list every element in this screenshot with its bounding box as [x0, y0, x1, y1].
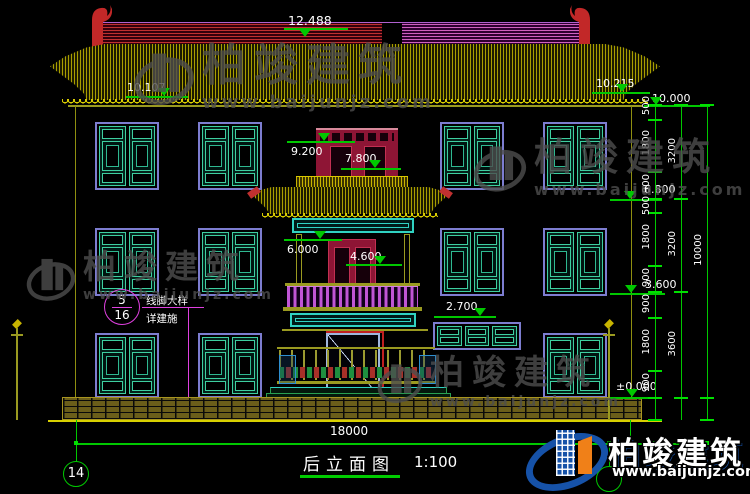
window-pane [437, 326, 462, 346]
window [198, 122, 262, 190]
watermark: 柏竣建筑 www.baijunjz.com [376, 356, 621, 410]
dim-label: 1800 [641, 224, 652, 249]
dim-label: 900 [641, 373, 652, 392]
watermark-logo-icon [472, 138, 528, 196]
window-pane [129, 337, 156, 394]
elevation-triangle-icon [616, 84, 628, 92]
watermark: 柏竣建筑 www.baijunjz.com [132, 44, 434, 113]
window-pane [202, 126, 229, 186]
total-width-label: 18000 [330, 424, 368, 438]
logo-building-blue-icon [556, 430, 575, 476]
elevation-triangle-icon [374, 256, 386, 264]
window-pane [465, 326, 490, 346]
window [95, 122, 159, 190]
window-pane [129, 126, 156, 186]
balcony-balusters [287, 286, 418, 307]
porch-chair-left [279, 355, 296, 384]
middle-roof [252, 187, 448, 214]
window-pane [492, 326, 517, 346]
watermark-logo-icon [376, 356, 424, 408]
elevation-value: 6.000 [287, 243, 319, 256]
ground-line [48, 420, 662, 422]
lamp-post-left [16, 328, 18, 420]
balcony-door-panel [334, 247, 350, 287]
drawing-scale: 1:100 [414, 453, 457, 471]
pavilion-lattice [320, 133, 394, 141]
title-underline [300, 475, 400, 478]
elevation-triangle-icon [318, 133, 330, 141]
elevation-triangle-icon [474, 308, 486, 316]
elevation-triangle-icon [626, 389, 638, 397]
elevation-triangle-icon [625, 285, 637, 293]
elevation-value: 12.488 [288, 13, 332, 28]
elevation-value: 9.200 [291, 145, 323, 158]
watermark-url: www.baijunjz.com [534, 180, 745, 199]
dim-label: 1800 [641, 329, 652, 354]
dim-label: 900 [641, 294, 652, 313]
window [543, 228, 607, 296]
window [440, 228, 504, 296]
elevation-value: 2.700 [446, 300, 478, 313]
window-pane [444, 232, 471, 292]
grid-bubble-14: 14 [63, 461, 89, 487]
window-pane [577, 232, 604, 292]
dim-label: 10000 [693, 234, 704, 266]
watermark-name: 柏竣建筑 [534, 138, 745, 176]
elevation-triangle-icon [299, 29, 311, 37]
cad-elevation-drawing: 12.488 10.107 10.215 10.000 9.200 7.800 … [0, 0, 750, 494]
window-pane [99, 126, 126, 186]
porch-rail-top [277, 347, 435, 349]
door-red-line-h [326, 331, 384, 333]
dim-label: 3600 [667, 331, 678, 356]
watermark-url: www.baijunjz.com [202, 92, 434, 113]
ridge-ornament-left [84, 4, 112, 48]
elevation-triangle-icon [314, 231, 326, 239]
callout-text-line2: 详建施 [146, 311, 178, 326]
dim-label: 500 [641, 96, 652, 115]
watermark-name: 柏竣建筑 [83, 250, 274, 283]
dim-label: 900 [641, 268, 652, 287]
lamp-post-arm-right [603, 334, 615, 336]
watermark-name: 柏竣建筑 [430, 356, 621, 390]
ridge-ornament-right [570, 4, 598, 48]
window-pane [99, 337, 126, 394]
window [198, 333, 262, 398]
logo-url: www.baijunjz.com [612, 464, 750, 480]
callout-denominator: 16 [114, 309, 129, 321]
drawing-title: 后立面图 [303, 450, 395, 475]
balcony-base-rail [283, 307, 422, 311]
callout-leader-line [188, 307, 189, 397]
window-pane [547, 232, 574, 292]
window-pane [474, 232, 501, 292]
watermark: 柏竣建筑 www.baijunjz.com [472, 138, 745, 199]
lamp-post-arm-left [11, 334, 23, 336]
dim-label: 3200 [667, 231, 678, 256]
cyan-beam-upper [292, 218, 414, 233]
watermark-url: www.baijunjz.com [83, 287, 274, 303]
window [95, 333, 159, 398]
watermark-name: 柏竣建筑 [202, 44, 434, 88]
watermark: 柏竣建筑 www.baijunjz.com [25, 250, 274, 306]
ridge-hatch-right [402, 23, 583, 46]
watermark-logo-icon [132, 44, 196, 110]
window-pane [444, 126, 471, 186]
window-pane [232, 337, 259, 394]
window-pane [202, 337, 229, 394]
high-window [433, 322, 521, 350]
watermark-logo-icon [25, 250, 77, 306]
elevation-triangle-icon [369, 160, 381, 168]
cyan-beam-lower [290, 313, 416, 327]
window-pane [232, 126, 259, 186]
watermark-url: www.baijunjz.com [430, 394, 621, 410]
logo-building-orange-icon [578, 436, 592, 474]
